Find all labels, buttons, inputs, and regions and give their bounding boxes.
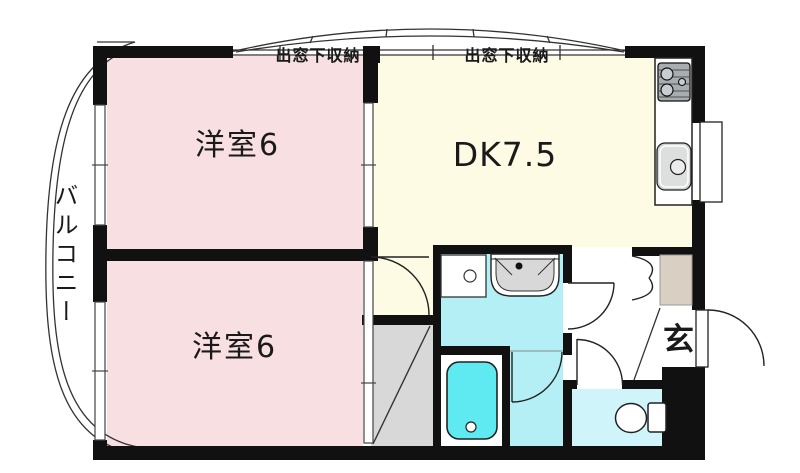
wall-bathroom-right — [502, 346, 510, 448]
wall-bottom — [93, 446, 705, 460]
entrance-door-leaf — [696, 310, 708, 367]
kitchen-sink-icon — [657, 143, 691, 190]
wall-washroom-right-lower — [563, 333, 572, 355]
gas-stove-icon — [658, 63, 690, 101]
washroom-door-arc — [568, 283, 614, 329]
wall-toilet-top-left — [563, 380, 577, 389]
water-heater — [700, 122, 722, 202]
bathtub-icon — [447, 362, 497, 439]
wall-bath-left — [433, 315, 441, 448]
wall-left-2 — [93, 225, 107, 302]
genkan-step-line — [634, 308, 660, 380]
bay-storage-left-label: 出窓下収納 — [260, 48, 376, 64]
floor-plan-drawing — [0, 0, 800, 473]
entrance-label: 玄 — [663, 325, 694, 356]
wall-washroom-top — [433, 245, 572, 254]
dining-kitchen-label: DK7.5 — [430, 138, 580, 171]
bay-storage-right-label: 出窓下収納 — [449, 48, 565, 64]
wall-washroom-bottom — [433, 346, 510, 355]
wall-partition-mid — [363, 227, 378, 261]
wall-right-1 — [692, 46, 705, 123]
bedroom-top-label: 洋室6 — [150, 131, 325, 161]
entrance-door-arc — [708, 310, 764, 366]
shoe-cabinet — [660, 255, 692, 305]
washing-machine-pan-icon — [441, 255, 486, 297]
wall-washroom-right-upper — [563, 245, 572, 283]
kitchen-unit — [655, 58, 722, 205]
bedroom-bottom-label: 洋室6 — [147, 333, 322, 363]
wall-top-left — [93, 46, 233, 58]
wall-toilet-right-block — [662, 367, 705, 448]
basin-faucet — [516, 263, 523, 270]
balcony-label: バルコニー — [52, 165, 76, 345]
toilet-icon — [616, 403, 667, 433]
toilet-door-arc — [577, 340, 623, 386]
wall-toilet-left — [563, 382, 572, 448]
wall-toilet-top-right — [622, 380, 668, 389]
wall-right-2 — [692, 200, 705, 310]
washbasin-icon — [491, 254, 559, 296]
washroom-fixtures — [441, 254, 559, 297]
sliding-door-partition-bottom — [364, 261, 373, 443]
bifold-door-upper — [632, 256, 653, 278]
bathtub-drain — [466, 422, 476, 432]
bifold-door-lower — [632, 278, 653, 300]
floor-plan: 洋室6 DK7.5 洋室6 玄 バルコニー 出窓下収納 出窓下収納 — [0, 0, 800, 473]
wall-room-divider — [93, 249, 373, 261]
wall-left-1 — [93, 46, 107, 105]
